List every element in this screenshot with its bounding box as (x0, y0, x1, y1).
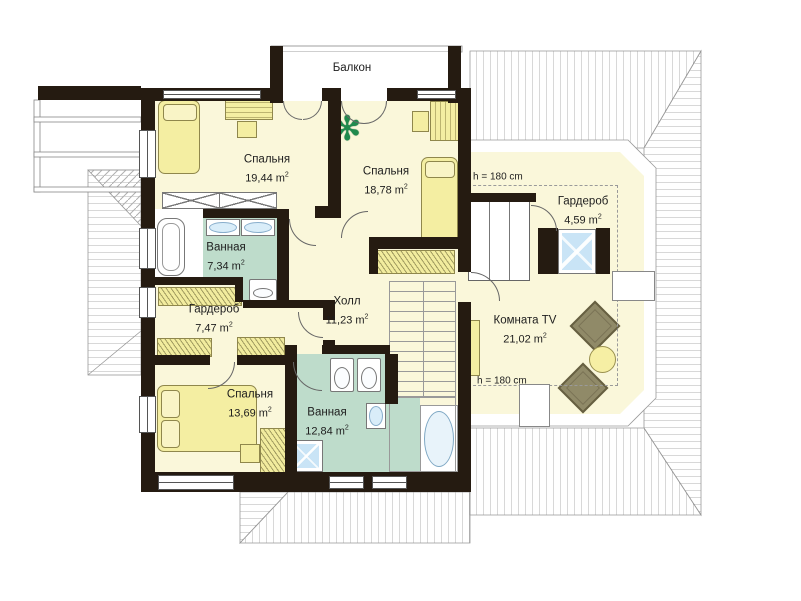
window-bottom-bath2a (329, 476, 364, 489)
window-top-right (417, 90, 456, 99)
bedroom3-wardrobe (260, 428, 286, 474)
toilet-bath2-left (330, 358, 354, 392)
label-bathroom-1: Ванная 7,34m2 (206, 240, 245, 275)
wall-wardrobe1-north (243, 300, 335, 308)
wall-hall-rack-stub (369, 249, 378, 274)
bed-2-pillow (425, 161, 455, 178)
bed-3-pillow-a (161, 390, 180, 418)
wall-bedroom3-north-a (155, 355, 210, 365)
wall-right-lower (458, 302, 471, 492)
wall-bath1-south (155, 277, 243, 285)
toilet-bath1 (249, 279, 277, 301)
label-hall: Холл 11,23m2 (326, 294, 369, 329)
wall-annex-shower-left (538, 228, 558, 274)
chair-bedroom-1 (237, 121, 257, 138)
wall-balcony-left (270, 46, 283, 103)
window-left-wardrobe1 (139, 287, 156, 318)
wall-bath1-north (203, 209, 287, 218)
wall-top-mid (322, 88, 341, 101)
roof-left (88, 170, 141, 375)
wall-bath2-niche (385, 354, 398, 404)
chimney-bottom (519, 384, 550, 427)
label-wardrobe-2: Гардероб 4,59m2 (558, 194, 609, 229)
height-line-top (468, 185, 618, 186)
window-bottom-bath2b (372, 476, 407, 489)
wardrobe2-cabinet (468, 201, 530, 281)
label-balcony: Балкон (333, 60, 372, 76)
wall-terrace-bar (38, 86, 141, 100)
floor-plan: ✻ (0, 0, 801, 601)
staircase-stringer (423, 281, 424, 397)
height-note-bottom: h = 180 cm (477, 376, 527, 387)
bed-1-pillow (163, 104, 197, 121)
wall-annex-cabinet (466, 193, 536, 202)
closet-bedroom-1a (162, 192, 220, 209)
window-left-bath1 (139, 228, 156, 269)
toilet-bath2-right (357, 358, 381, 392)
wardrobe1-rack-right (237, 337, 285, 356)
label-wardrobe-1: Гардероб 7,47m2 (189, 302, 240, 337)
desk-bedroom-2 (430, 101, 460, 141)
closet-bedroom-1b (219, 192, 277, 209)
wall-toilet-niche (235, 277, 243, 302)
window-top-left (163, 90, 261, 99)
chimney-top (612, 271, 655, 301)
label-bedroom-1: Спальня 19,44m2 (244, 152, 290, 187)
wall-bath1-east (277, 209, 289, 308)
shower-wardrobe2 (558, 229, 596, 274)
height-note-top: h = 180 cm (473, 172, 523, 183)
wall-bedroom3-north-b (237, 355, 285, 365)
wall-hall-top-stub (315, 206, 341, 218)
window-left-bedroom1 (139, 130, 156, 178)
wall-bath2-north (322, 345, 390, 354)
wall-bedroom-divider (328, 101, 341, 218)
sink-bath1-left (206, 219, 240, 236)
wall-bedroom2-south (369, 237, 458, 249)
chair-bedroom-2 (412, 111, 429, 132)
window-left-bedroom3 (139, 396, 156, 433)
bathtub-bath1 (157, 218, 185, 276)
label-bedroom-2: Спальня 18,78m2 (363, 164, 409, 199)
bathtub-bath2 (424, 411, 454, 467)
label-bathroom-2: Ванная 12,84m2 (305, 405, 349, 440)
window-bottom-bedroom3 (158, 475, 234, 490)
roof-bottom (240, 492, 470, 543)
hall-closet-rack (377, 250, 455, 274)
label-bedroom-3: Спальня 13,69m2 (227, 387, 273, 422)
round-table (589, 346, 616, 373)
label-tv-room: Комната TV 21,02m2 (494, 313, 557, 348)
sink-bath1-right (241, 219, 275, 236)
sink-bath2 (366, 403, 386, 429)
wall-right-upper (458, 88, 471, 272)
bed-3-pillow-b (161, 420, 180, 448)
wall-annex-shower-right (596, 228, 610, 274)
bedroom3-stool (240, 444, 260, 463)
